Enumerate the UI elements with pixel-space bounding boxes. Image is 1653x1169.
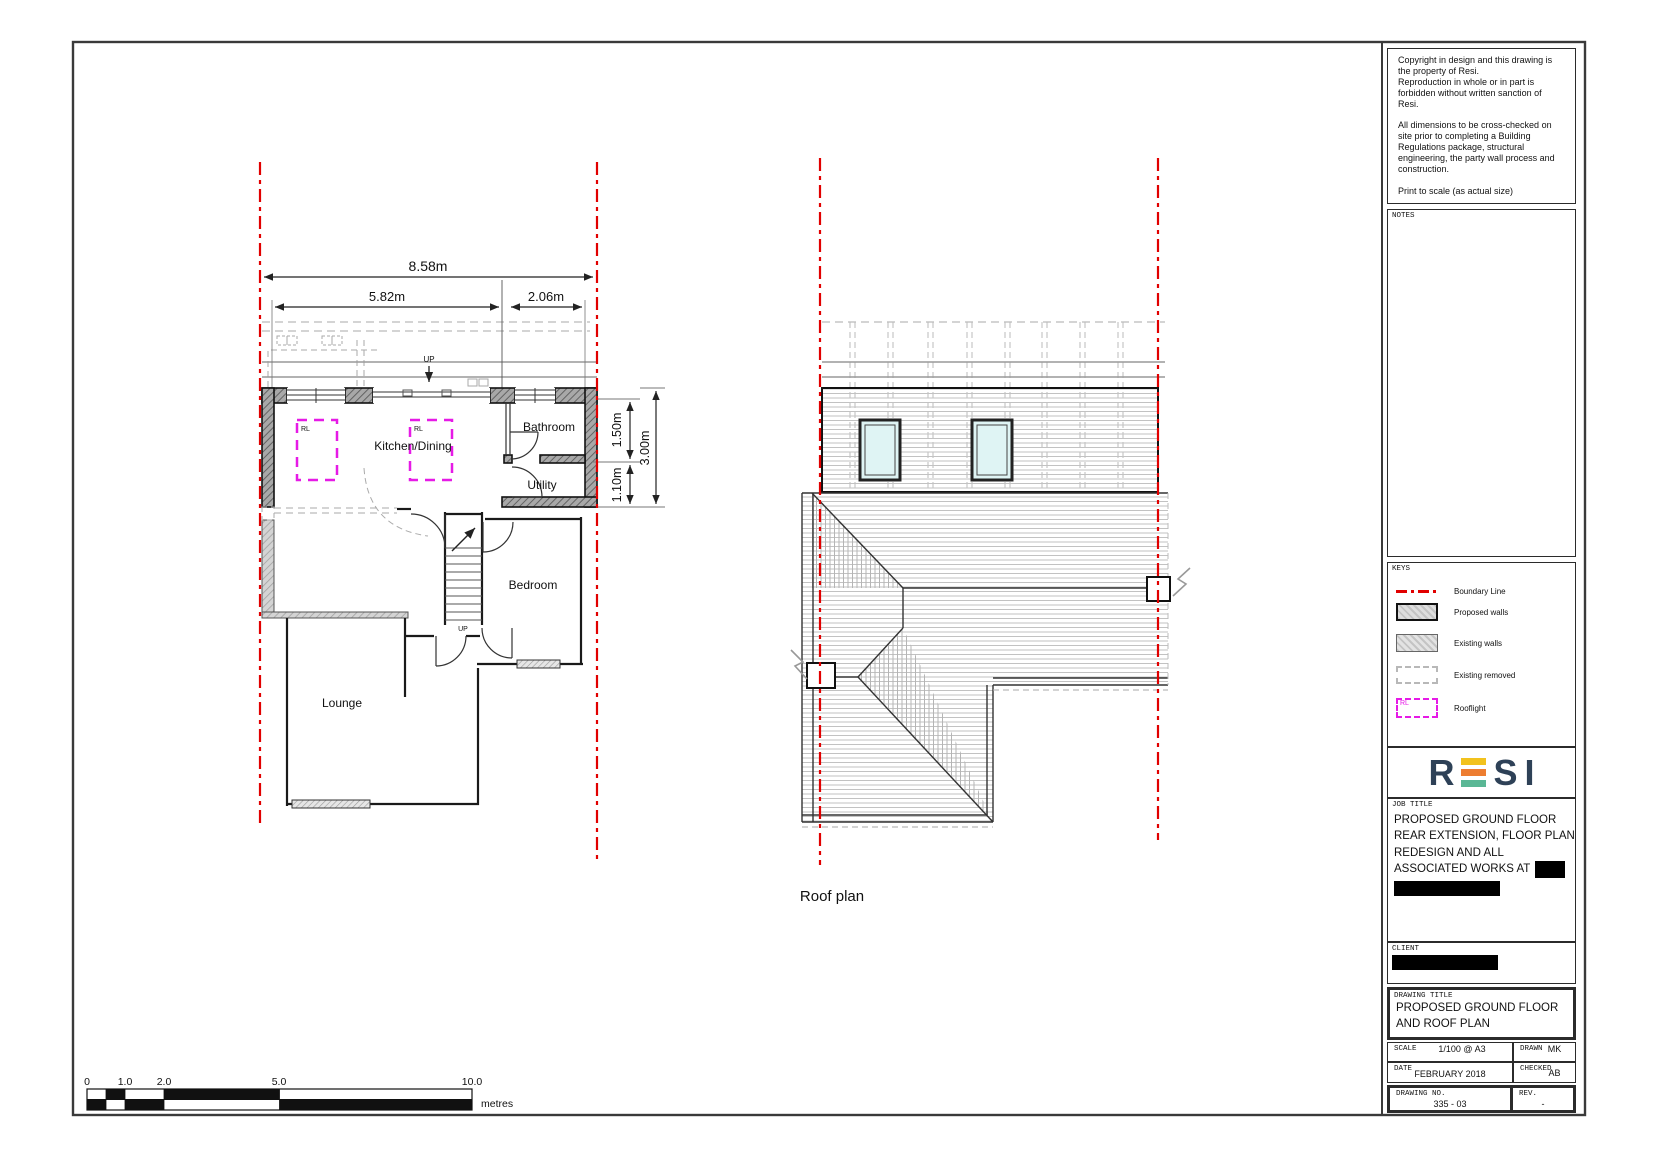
room-label-utility: Utility bbox=[527, 478, 556, 492]
copyright-box: Copyright in design and this drawing is … bbox=[1387, 48, 1576, 204]
stairs-up-label: UP bbox=[458, 626, 468, 633]
existing-walls-icon bbox=[1396, 634, 1438, 652]
main-roof bbox=[802, 493, 1168, 827]
scale-tick-1: 1.0 bbox=[118, 1076, 133, 1088]
client-box: CLIENT bbox=[1387, 942, 1576, 984]
key-existing-walls: Existing walls bbox=[1396, 634, 1502, 652]
scale-label: SCALE bbox=[1390, 1043, 1417, 1053]
up-label: UP bbox=[423, 355, 434, 364]
drawing-no-label: DRAWING NO. bbox=[1392, 1088, 1446, 1098]
zigzag-arrow-right bbox=[1173, 568, 1190, 596]
keys-box: KEYS Boundary Line Proposed walls Existi… bbox=[1387, 562, 1576, 747]
job-title-box: JOB TITLE PROPOSED GROUND FLOOR REAR EXT… bbox=[1387, 798, 1576, 942]
key-rooflight: RL Rooflight bbox=[1396, 698, 1486, 718]
room-label-bedroom: Bedroom bbox=[509, 578, 558, 592]
floor-plan: UP 8.58m 5.82m 2.06m bbox=[260, 162, 665, 861]
bedroom-window bbox=[517, 660, 560, 668]
scale-bar: 0 1.0 2.0 5.0 10.0 metres bbox=[84, 1076, 513, 1110]
key-label: Existing removed bbox=[1454, 671, 1515, 680]
drawn-cell: DRAWN MK bbox=[1513, 1042, 1576, 1062]
room-label-bathroom: Bathroom bbox=[523, 420, 575, 434]
roof-rooflight-2 bbox=[972, 420, 1012, 480]
up-annotation: UP bbox=[423, 355, 434, 382]
dim-depth-bottom: 1.10m bbox=[610, 468, 624, 503]
notes-box: NOTES bbox=[1387, 209, 1576, 557]
job-title-label: JOB TITLE bbox=[1388, 799, 1575, 809]
logo-letter-r: R bbox=[1428, 755, 1454, 791]
room-label-lounge: Lounge bbox=[322, 696, 362, 710]
key-label: Rooflight bbox=[1454, 704, 1486, 713]
key-proposed-walls: Proposed walls bbox=[1396, 603, 1508, 621]
lounge-window bbox=[292, 800, 370, 808]
redacted-address-line bbox=[1394, 881, 1500, 896]
key-label: Proposed walls bbox=[1454, 608, 1508, 617]
drawing-title-label: DRAWING TITLE bbox=[1390, 990, 1573, 1000]
copyright-text: Copyright in design and this drawing is … bbox=[1388, 49, 1575, 197]
notes-label: NOTES bbox=[1388, 210, 1575, 220]
roof-rooflight-1 bbox=[860, 420, 900, 480]
redacted-client bbox=[1392, 955, 1498, 970]
checked-label: CHECKED bbox=[1516, 1063, 1552, 1073]
drawing-no-cell: DRAWING NO. 335 - 03 bbox=[1387, 1085, 1513, 1113]
key-label: Existing walls bbox=[1454, 639, 1502, 648]
rev-value: - bbox=[1513, 1099, 1573, 1109]
scale-tick-2: 2.0 bbox=[157, 1076, 172, 1088]
rooflight-tag-2: RL bbox=[414, 426, 423, 433]
drawing-no-value: 335 - 03 bbox=[1390, 1099, 1510, 1109]
proposed-walls-icon bbox=[1396, 603, 1438, 621]
roof-plan: Roof plan bbox=[791, 158, 1190, 905]
dim-depth-top: 1.50m bbox=[610, 413, 624, 448]
dim-depth-total: 3.00m bbox=[638, 431, 652, 466]
dim-right: 2.06m bbox=[528, 289, 564, 304]
key-label: Boundary Line bbox=[1454, 587, 1506, 596]
scale-tick-4: 10.0 bbox=[462, 1076, 483, 1088]
keys-label: KEYS bbox=[1388, 563, 1575, 573]
logo-letter-i: I bbox=[1525, 755, 1535, 791]
logo-box: R S I bbox=[1387, 747, 1576, 798]
drawing-title-box: DRAWING TITLE PROPOSED GROUND FLOOR AND … bbox=[1387, 987, 1576, 1040]
redacted-address bbox=[1535, 861, 1565, 878]
scale-tick-0: 0 bbox=[84, 1076, 90, 1088]
key-boundary-line: Boundary Line bbox=[1396, 587, 1506, 596]
logo-letter-s: S bbox=[1493, 755, 1517, 791]
existing-walls bbox=[262, 507, 408, 618]
dim-left: 5.82m bbox=[369, 289, 405, 304]
dimensions-right: 1.50m 1.10m 3.00m bbox=[592, 388, 665, 507]
scale-value: 1/100 @ A3 bbox=[1412, 1044, 1512, 1054]
job-title-text: PROPOSED GROUND FLOOR REAR EXTENSION, FL… bbox=[1388, 809, 1575, 896]
existing-wall-lines bbox=[286, 509, 583, 806]
rooflight-tag-1: RL bbox=[301, 426, 310, 433]
resi-logo: R S I bbox=[1388, 748, 1575, 797]
rooflight-icon: RL bbox=[1396, 698, 1438, 718]
rev-label: REV. bbox=[1515, 1088, 1537, 1098]
logo-bar-orange bbox=[1461, 769, 1486, 776]
scale-unit-label: metres bbox=[481, 1098, 513, 1110]
roof-plan-label: Roof plan bbox=[800, 888, 864, 905]
logo-bar-yellow bbox=[1461, 758, 1486, 765]
room-label-kitchen: Kitchen/Dining bbox=[374, 439, 451, 453]
date-cell: DATE FEBRUARY 2018 bbox=[1387, 1062, 1513, 1083]
rev-cell: REV. - bbox=[1510, 1085, 1576, 1113]
drawing-sheet: UP 8.58m 5.82m 2.06m bbox=[0, 0, 1653, 1169]
rooflight-tag: RL bbox=[1400, 700, 1409, 707]
client-label: CLIENT bbox=[1388, 943, 1575, 953]
existing-removed-icon bbox=[1396, 666, 1438, 684]
scale-tick-3: 5.0 bbox=[272, 1076, 287, 1088]
scale-cell: SCALE 1/100 @ A3 bbox=[1387, 1042, 1513, 1062]
date-label: DATE bbox=[1390, 1063, 1412, 1073]
stairs: UP bbox=[445, 528, 482, 633]
logo-letter-e-bars bbox=[1461, 758, 1486, 787]
scale-bar-segments bbox=[87, 1089, 472, 1110]
key-existing-removed: Existing removed bbox=[1396, 666, 1515, 684]
boundary-line-icon bbox=[1396, 590, 1438, 593]
drawing-title-text: PROPOSED GROUND FLOOR AND ROOF PLAN bbox=[1390, 1000, 1573, 1032]
checked-cell: CHECKED AB bbox=[1513, 1062, 1576, 1083]
drawn-label: DRAWN bbox=[1516, 1043, 1543, 1053]
logo-bar-teal bbox=[1461, 780, 1486, 787]
dim-overall: 8.58m bbox=[409, 258, 448, 274]
